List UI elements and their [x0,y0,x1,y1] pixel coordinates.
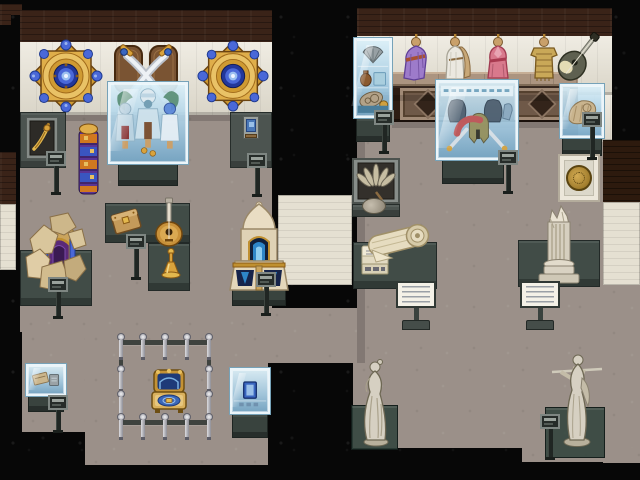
greek-case-base [442,158,504,184]
mannequin-purple-robe[interactable] [398,34,434,84]
placard-stand [134,249,139,277]
wall-lute[interactable] [556,28,602,86]
mannequin-pink-dress[interactable] [480,34,516,84]
placard-foot [261,313,271,316]
broken-column-exhibit[interactable] [534,198,584,286]
stanchion-post [138,413,148,440]
placard-stand [56,410,61,430]
pottery-cabinet[interactable] [354,38,392,118]
stanchion-post [182,413,192,440]
picture-art [246,119,256,132]
stanchion-post [116,365,126,392]
museum-scene [0,0,640,480]
royal-bed-exhibit[interactable] [150,368,188,414]
placard-foot [545,457,555,460]
floor-corridor [266,308,361,363]
costume-display-case[interactable] [108,82,188,164]
exhibit-placard[interactable] [46,151,66,195]
book-display-case[interactable] [230,368,270,414]
stanchion-post [160,413,170,440]
stanchion-post [116,333,126,360]
placard-foot [131,277,141,280]
placard-face [126,234,146,249]
wall-brown-edge-tile [0,152,16,204]
placard-face [582,112,602,127]
mannequin-white-toga[interactable] [438,34,474,84]
placard-foot [379,151,389,154]
relic-display-case[interactable] [26,364,66,396]
medallion-emboss [573,172,585,184]
placard-foot [53,430,63,433]
floor-right-edge [603,285,640,463]
placard-stand [255,168,260,194]
info-sign-face [520,281,560,308]
stanchion-post [138,333,148,360]
medallion-frame[interactable] [558,154,600,202]
placard-foot [252,194,262,197]
wall-brown-corner-b [0,14,11,25]
scroll-exhibit[interactable] [366,212,434,264]
placard-face [498,150,518,165]
exhibit-placard[interactable] [247,153,267,197]
mat-white-right-edge [603,202,640,285]
mandala-ornament-left[interactable] [28,36,104,116]
placard-stand [54,166,59,192]
placard-face [540,414,560,429]
exhibit-placard[interactable] [540,414,560,460]
placard-stand [590,127,595,157]
info-sign-face [396,281,436,308]
lute-exhibit[interactable] [154,197,184,247]
book-case-base [232,414,268,438]
totem-pole[interactable] [77,122,100,198]
placard-face [247,153,267,168]
costume-case-base [118,162,178,186]
mat-white-edge-tile [0,204,16,270]
picture-highlight [249,122,254,127]
exhibit-placard[interactable] [48,395,68,433]
stanchion-post [160,333,170,360]
placard-foot [503,191,513,194]
mandala-ornament-right[interactable] [196,36,270,116]
golden-flask-exhibit[interactable] [158,247,184,279]
stanchion-post [204,413,214,440]
greek-armor-case[interactable] [436,80,518,160]
info-sign[interactable] [520,281,560,330]
placard-face [256,272,276,287]
picture-ledge [245,134,257,138]
fan-frame[interactable] [352,158,400,204]
placard-face [48,277,68,292]
exhibit-placard[interactable] [48,277,68,319]
stanchion-post [116,413,126,440]
mat-brown-right-edge [603,140,640,202]
placard-foot [587,157,597,160]
placard-stand [548,429,553,457]
info-sign-pole [414,308,419,320]
placard-foot [51,192,61,195]
info-sign-pole [538,308,543,320]
placard-face [48,395,68,410]
wooden-box-exhibit[interactable] [110,206,142,236]
exhibit-placard[interactable] [374,110,394,154]
info-sign-foot [402,320,430,330]
stanchion-post [204,365,214,392]
statue-woman[interactable] [354,356,396,448]
info-sign[interactable] [396,281,436,330]
stanchion-post [204,333,214,360]
placard-stand [56,292,61,316]
placard-face [46,151,66,166]
stanchion-post [182,333,192,360]
placard-stand [506,165,511,191]
gold-medallion [566,165,592,191]
framed-picture[interactable] [243,116,259,139]
placard-stand [264,287,269,313]
placard-face [374,110,394,125]
exhibit-placard[interactable] [582,112,602,160]
exhibit-placard[interactable] [126,234,146,280]
placard-foot [53,316,63,319]
diamond-inlay [527,89,557,119]
exhibit-placard[interactable] [256,272,276,316]
exhibit-placard[interactable] [498,150,518,194]
info-sign-foot [526,320,554,330]
placard-stand [382,125,387,151]
